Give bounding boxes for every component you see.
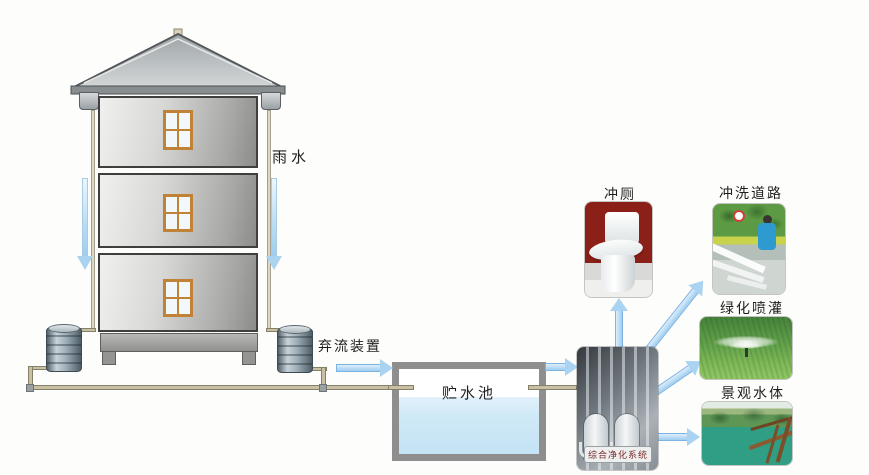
first-flush-barrel-right bbox=[277, 328, 313, 373]
landscape-water-label: 景观水体 bbox=[721, 383, 785, 403]
rain-arrow-left-shaft bbox=[82, 178, 88, 257]
first-flush-device-label: 弃流装置 bbox=[318, 336, 382, 356]
house-base-leg-right bbox=[242, 351, 256, 365]
window-floor-3 bbox=[163, 110, 193, 150]
pipe-elbow-left bbox=[26, 384, 34, 392]
house-base-leg-left bbox=[102, 351, 116, 365]
pipe-pool-inlet bbox=[388, 385, 414, 390]
pipe-main-collection bbox=[28, 385, 398, 390]
gutter-right bbox=[261, 92, 281, 110]
first-flush-barrel-left bbox=[46, 327, 82, 372]
storage-pool-label: 贮水池 bbox=[399, 382, 539, 403]
roof-face bbox=[74, 34, 282, 87]
house-floor-2 bbox=[98, 173, 258, 248]
purification-system-label: 综合净化系统 bbox=[584, 446, 652, 463]
rain-arrow-right-head bbox=[266, 256, 282, 270]
arrow-shaft bbox=[545, 363, 567, 371]
sprinkler-irrigation-image bbox=[700, 317, 792, 379]
purification-system-image: 综合净化系统 bbox=[577, 347, 658, 470]
rain-arrow-right bbox=[266, 178, 282, 270]
flow-arrow-purifier-to-toilet bbox=[610, 298, 628, 353]
storage-pool: 贮水池 bbox=[392, 362, 546, 461]
house-floor-3 bbox=[98, 96, 258, 168]
window-floor-1 bbox=[163, 279, 193, 317]
arrow-shaft bbox=[336, 364, 382, 372]
sprinkler-head bbox=[745, 348, 748, 357]
flow-arrow-purifier-to-pond bbox=[656, 428, 700, 446]
flow-arrow-barrel-to-pool bbox=[336, 359, 393, 377]
road-sign bbox=[733, 210, 745, 222]
house-base bbox=[100, 333, 258, 352]
arrow-head bbox=[380, 359, 393, 377]
rain-arrow-right-shaft bbox=[271, 178, 277, 257]
pipe-pool-outlet bbox=[528, 385, 577, 390]
toilet-image bbox=[585, 202, 652, 297]
roof-eave-board bbox=[71, 86, 285, 94]
road-worker-body bbox=[758, 223, 776, 250]
arrow-head bbox=[610, 298, 628, 311]
pool-water bbox=[399, 397, 539, 454]
greening-irrigation-label: 绿化喷灌 bbox=[720, 298, 784, 318]
gutter-left bbox=[79, 92, 99, 110]
rainwater-label: 雨水 bbox=[272, 146, 310, 167]
road-washing-image bbox=[713, 204, 785, 294]
rain-arrow-left bbox=[77, 178, 93, 270]
rainwater-reuse-diagram: 贮水池 综合净化系统 bbox=[0, 0, 869, 475]
window-floor-2 bbox=[163, 194, 193, 232]
flow-arrow-pool-to-purifier bbox=[545, 358, 578, 376]
toilet-base bbox=[601, 255, 635, 292]
rain-arrow-left-head bbox=[77, 256, 93, 270]
road-washing-label: 冲洗道路 bbox=[719, 183, 783, 203]
house-roof bbox=[70, 26, 286, 96]
pipe-elbow-right bbox=[319, 384, 327, 392]
arrow-head bbox=[687, 428, 700, 446]
arrow-shaft bbox=[656, 433, 689, 441]
toilet-flushing-label: 冲厕 bbox=[604, 184, 636, 204]
landscape-pond-image bbox=[702, 402, 792, 465]
house-floor-1 bbox=[98, 253, 258, 332]
